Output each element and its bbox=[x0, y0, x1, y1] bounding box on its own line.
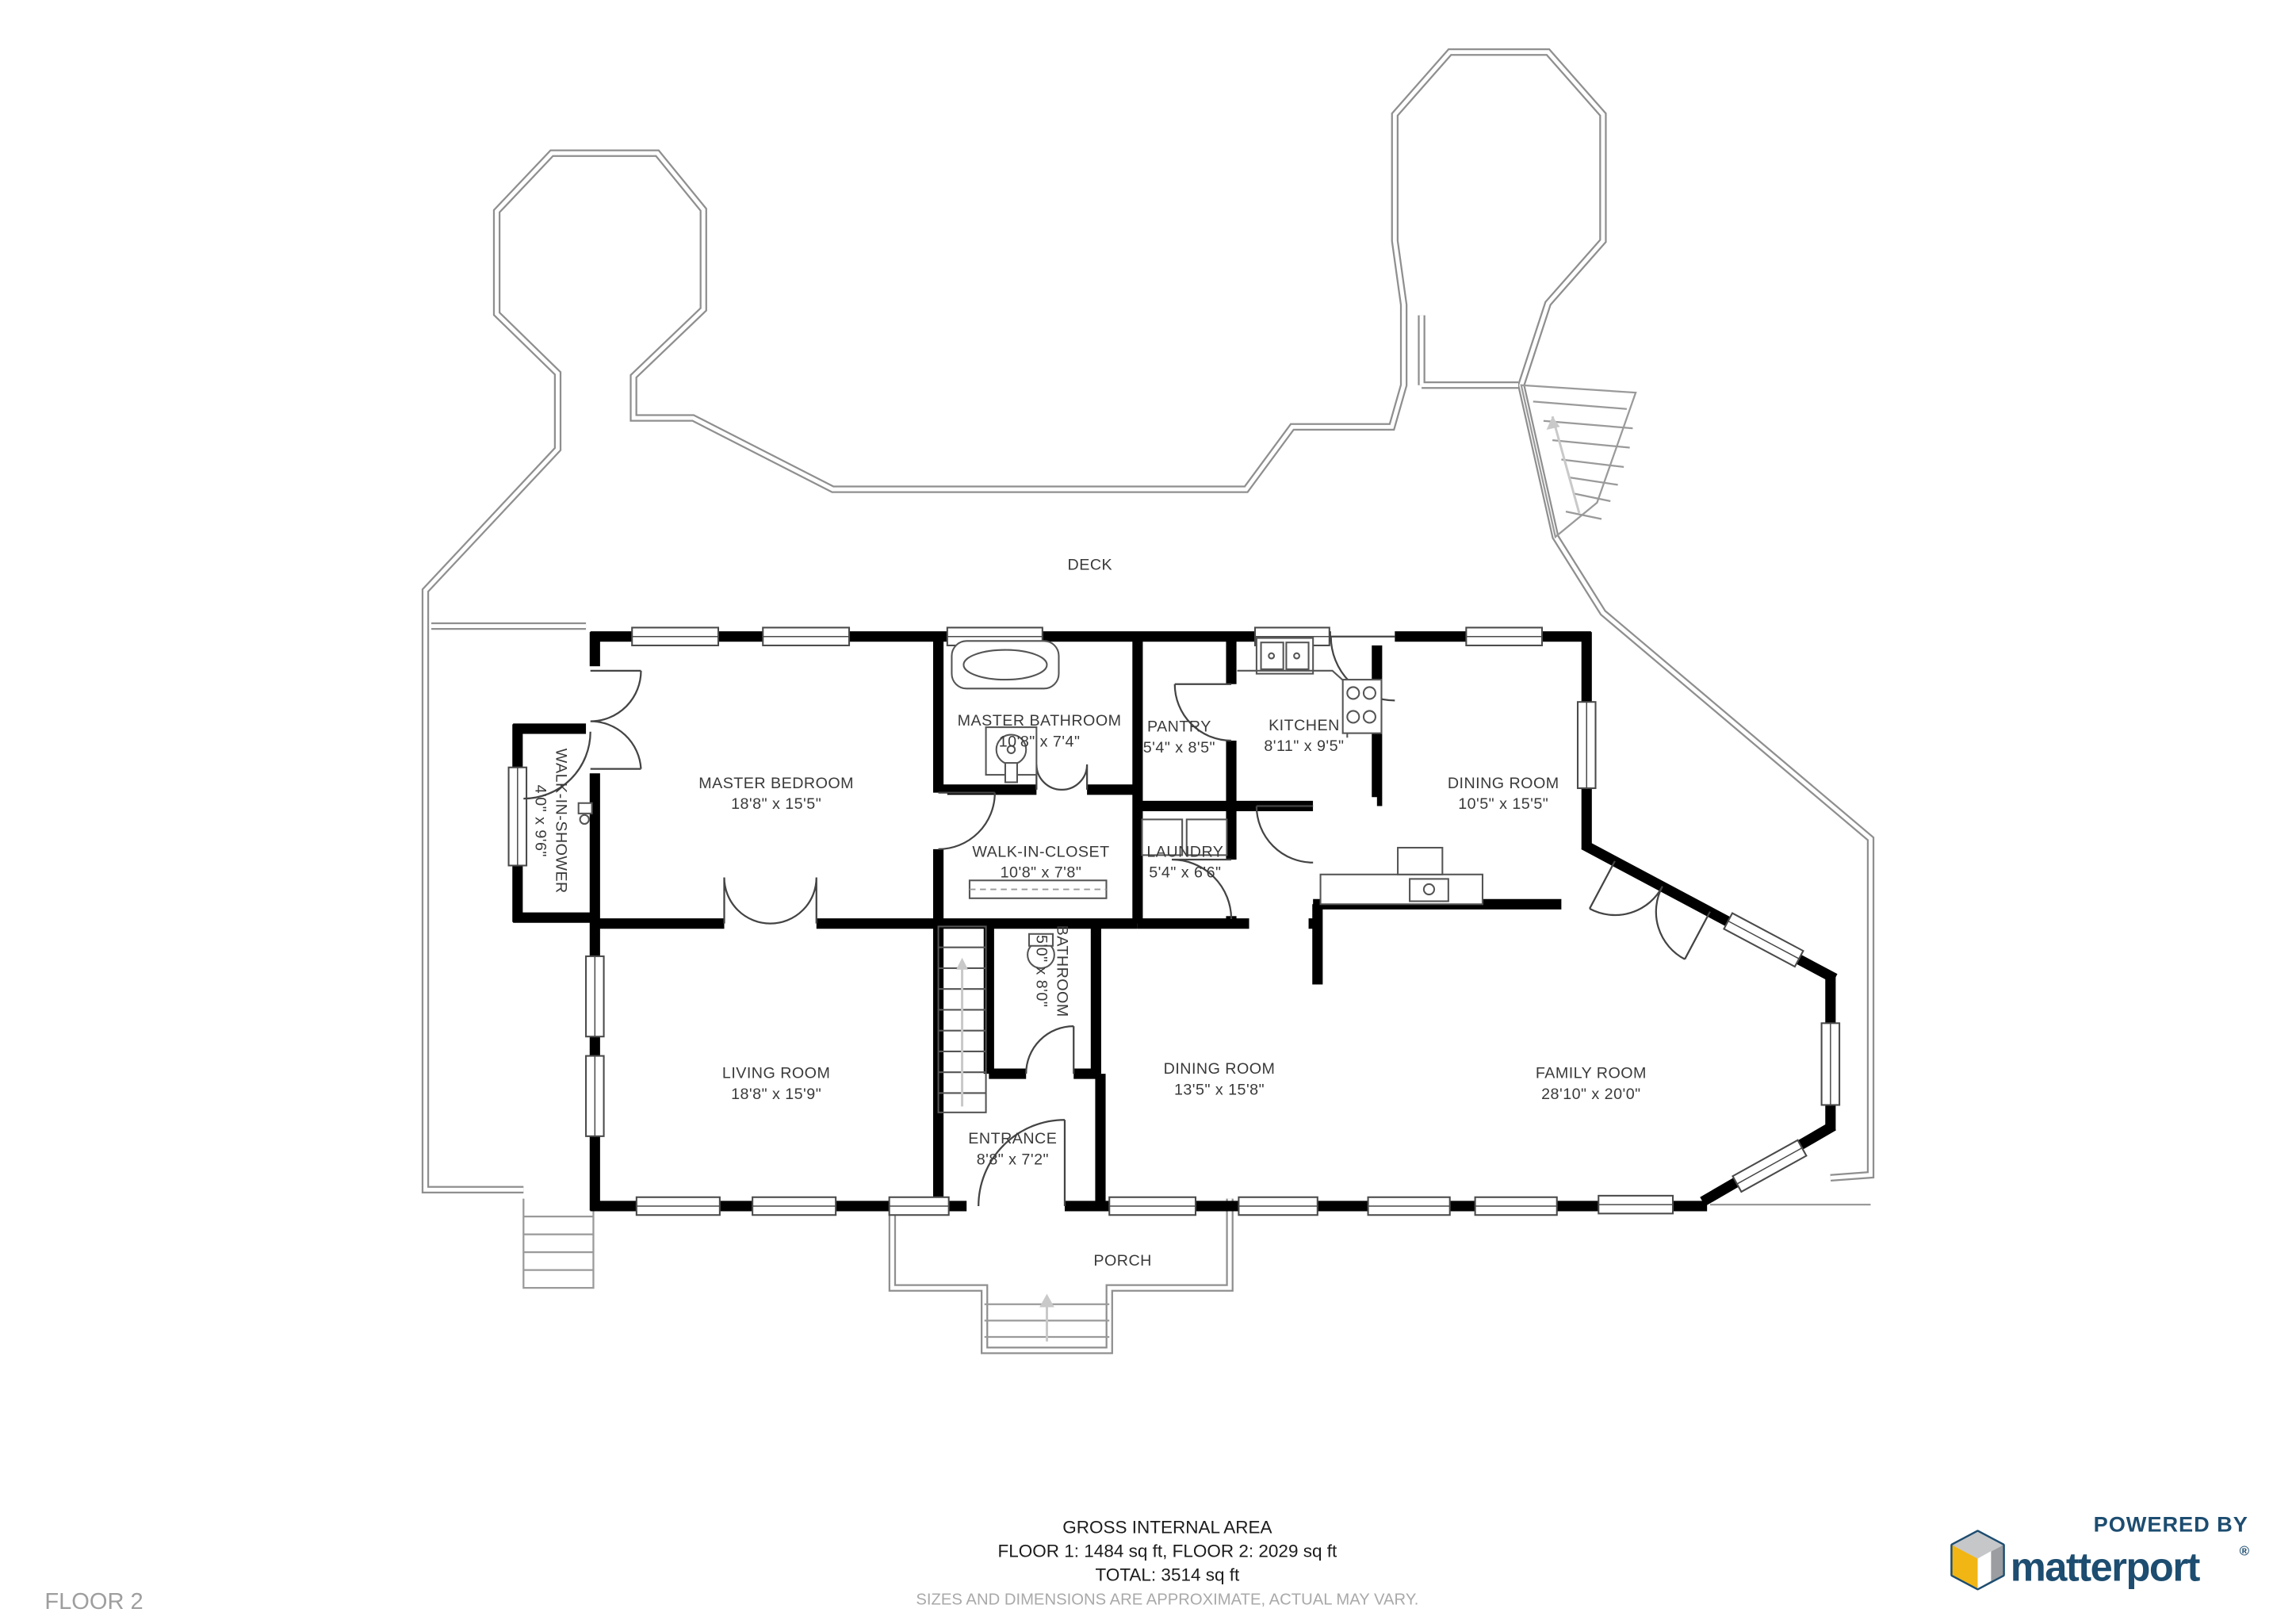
room-label-pantry: PANTRY bbox=[1147, 718, 1211, 736]
floor-label: FLOOR 2 bbox=[44, 1589, 143, 1614]
room-label-dining-room-top: DINING ROOM bbox=[1448, 775, 1559, 792]
matterport-branding: POWERED BY matterport ® bbox=[1953, 1512, 2250, 1590]
room-label-master-bedroom: MASTER BEDROOM bbox=[698, 775, 854, 792]
matterport-wordmark: matterport bbox=[2011, 1545, 2201, 1590]
gross-internal-area-title: GROSS INTERNAL AREA bbox=[1062, 1518, 1272, 1538]
wet-bar-counter bbox=[1321, 875, 1483, 905]
floor-plan-page: DECK PORCH bbox=[0, 0, 2296, 1624]
matterport-cube-icon bbox=[1953, 1532, 2003, 1588]
porch-label: PORCH bbox=[1093, 1252, 1151, 1270]
room-dims-family-room: 28'10" x 20'0" bbox=[1541, 1086, 1641, 1103]
room-label-walk-in-closet: WALK-IN-CLOSET bbox=[972, 843, 1109, 860]
floor-areas-text: FLOOR 1: 1484 sq ft, FLOOR 2: 2029 sq ft bbox=[998, 1542, 1337, 1561]
room-dims-bathroom: 5'0" x 8'0" bbox=[1032, 935, 1050, 1007]
room-dims-master-bedroom: 18'8" x 15'5" bbox=[731, 795, 821, 813]
room-dims-dining-room-top: 10'5" x 15'5" bbox=[1458, 795, 1548, 813]
interior-stairs bbox=[939, 926, 986, 1112]
room-label-family-room: FAMILY ROOM bbox=[1536, 1065, 1647, 1082]
room-dims-entrance: 8'8" x 7'2" bbox=[977, 1151, 1049, 1168]
floor-plan-canvas: DECK PORCH bbox=[0, 0, 2296, 1624]
room-dims-living-room: 18'8" x 15'9" bbox=[731, 1086, 821, 1103]
room-label-master-bathroom: MASTER BATHROOM bbox=[958, 712, 1122, 730]
registered-mark: ® bbox=[2240, 1544, 2250, 1559]
room-labels: MASTER BEDROOM 18'8" x 15'5" MASTER BATH… bbox=[531, 712, 1647, 1168]
deck-stairs bbox=[1521, 385, 1636, 537]
room-dims-walk-in-closet: 10'8" x 7'8" bbox=[1001, 864, 1082, 882]
room-dims-kitchen: 8'11" x 9'5" bbox=[1264, 737, 1344, 755]
left-exterior-steps bbox=[523, 1199, 593, 1289]
room-label-entrance: ENTRANCE bbox=[968, 1130, 1057, 1147]
room-dims-master-bathroom: 10'8" x 7'4" bbox=[999, 733, 1081, 750]
disclaimer-text: SIZES AND DIMENSIONS ARE APPROXIMATE, AC… bbox=[916, 1591, 1418, 1609]
room-dims-laundry: 5'4" x 6'6" bbox=[1149, 864, 1221, 882]
room-label-laundry: LAUNDRY bbox=[1146, 843, 1223, 860]
stove bbox=[1343, 680, 1382, 733]
porch-outline bbox=[892, 1199, 1230, 1350]
room-label-kitchen: KITCHEN bbox=[1269, 717, 1340, 734]
total-area-text: TOTAL: 3514 sq ft bbox=[1095, 1565, 1240, 1585]
room-label-walk-in-shower: WALK-IN-SHOWER bbox=[553, 749, 570, 894]
room-label-dining-room-bottom: DINING ROOM bbox=[1164, 1060, 1276, 1078]
deck-label: DECK bbox=[1068, 556, 1113, 573]
room-dims-pantry: 5'4" x 8'5" bbox=[1143, 739, 1215, 756]
shower-fixture bbox=[579, 803, 592, 814]
deck-outline bbox=[426, 52, 1871, 1190]
room-dims-dining-room-bottom: 13'5" x 15'8" bbox=[1174, 1081, 1265, 1098]
room-dims-walk-in-shower: 4'0" x 9'6" bbox=[531, 785, 549, 857]
room-label-living-room: LIVING ROOM bbox=[722, 1065, 830, 1082]
powered-by-text: POWERED BY bbox=[2094, 1512, 2248, 1537]
room-label-bathroom: BATHROOM bbox=[1054, 925, 1071, 1017]
footer: GROSS INTERNAL AREA FLOOR 1: 1484 sq ft,… bbox=[916, 1518, 1418, 1609]
